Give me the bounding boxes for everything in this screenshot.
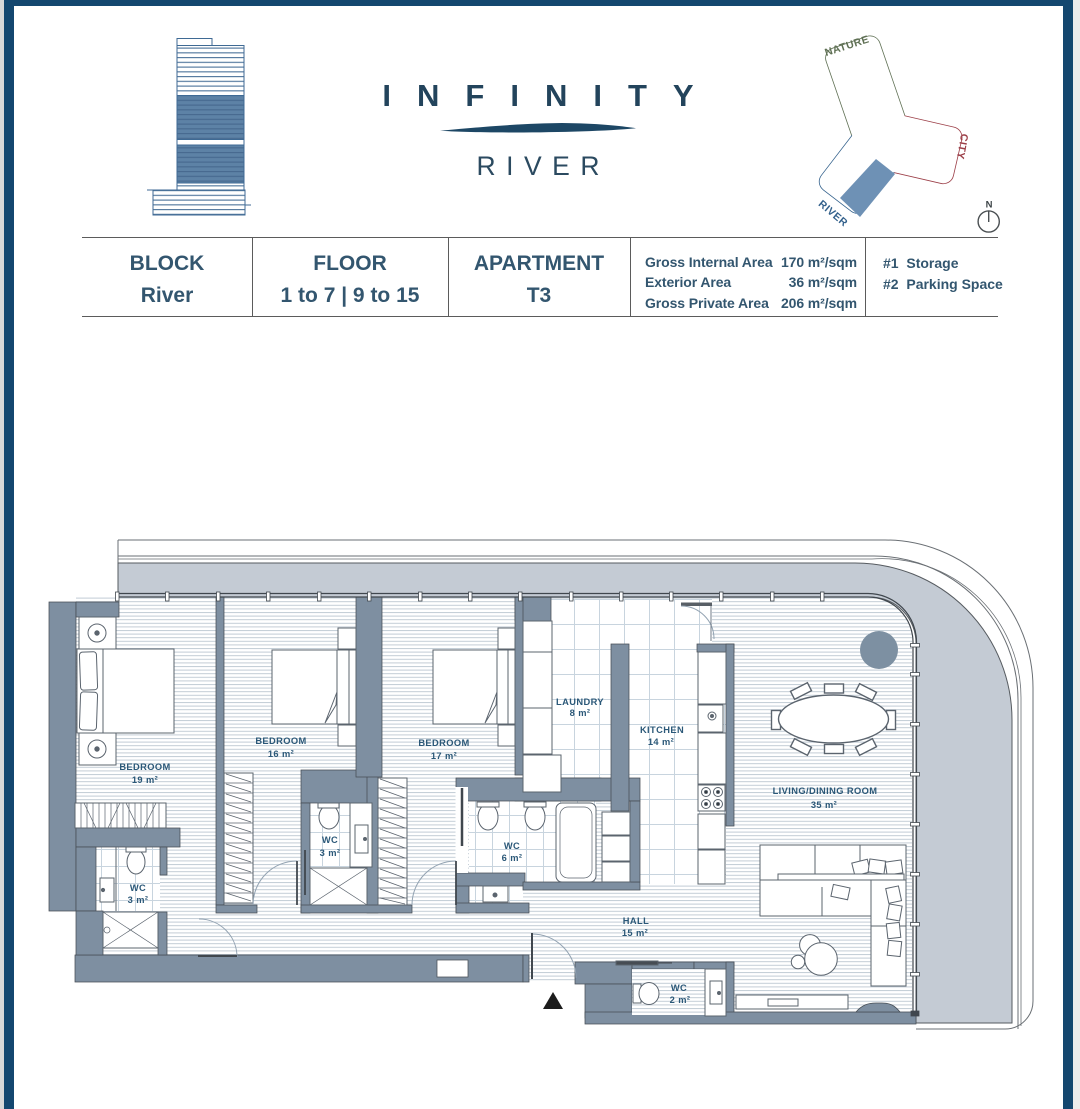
svg-text:BEDROOM: BEDROOM [119, 762, 170, 772]
svg-text:3 m²: 3 m² [128, 895, 149, 905]
svg-text:BEDROOM: BEDROOM [255, 736, 306, 746]
svg-text:2 m²: 2 m² [670, 995, 691, 1005]
svg-text:14 m²: 14 m² [648, 737, 674, 747]
svg-text:LIVING/DINING ROOM: LIVING/DINING ROOM [773, 786, 878, 796]
svg-text:16 m²: 16 m² [268, 749, 294, 759]
svg-text:BEDROOM: BEDROOM [418, 738, 469, 748]
svg-text:HALL: HALL [623, 916, 649, 926]
svg-text:8 m²: 8 m² [570, 708, 591, 718]
svg-text:WC: WC [504, 841, 520, 851]
svg-text:35 m²: 35 m² [811, 800, 837, 810]
svg-text:17 m²: 17 m² [431, 751, 457, 761]
svg-text:19 m²: 19 m² [132, 775, 158, 785]
svg-text:WC: WC [130, 883, 146, 893]
svg-text:LAUNDRY: LAUNDRY [556, 697, 604, 707]
svg-text:15 m²: 15 m² [622, 928, 648, 938]
svg-text:WC: WC [322, 835, 338, 845]
svg-text:3 m²: 3 m² [320, 848, 341, 858]
svg-text:6 m²: 6 m² [502, 853, 523, 863]
svg-text:WC: WC [671, 983, 687, 993]
svg-text:KITCHEN: KITCHEN [640, 725, 684, 735]
